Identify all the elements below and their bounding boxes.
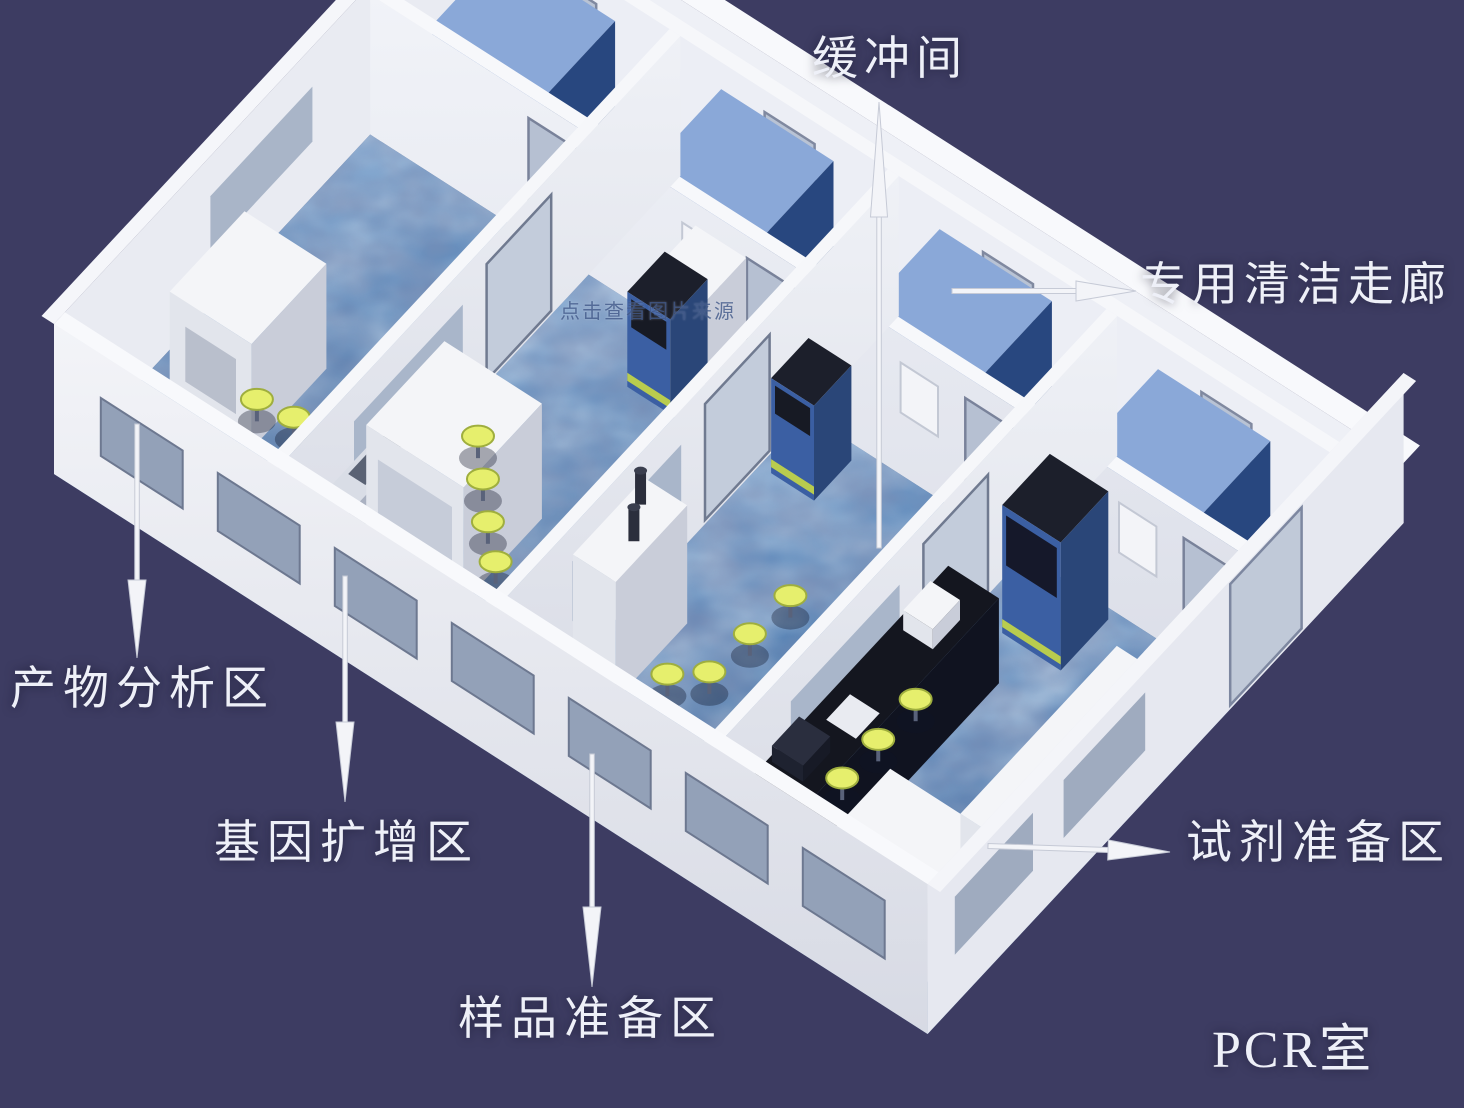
stool-room3-a bbox=[774, 585, 806, 606]
label-reagent-preparation: 试剂准备区 bbox=[1186, 818, 1451, 869]
stool-room4-c bbox=[826, 768, 858, 789]
pcr-lab-diagram: 缓冲间 专用清洁走廊 产物分析区 基因扩增区 样品准备区 试剂准备区 PCR室 … bbox=[0, 0, 1464, 1108]
label-sample-preparation: 样品准备区 bbox=[458, 994, 723, 1045]
arrow-sample-preparation-shaft bbox=[590, 754, 595, 907]
faucet-cap-room3-2 bbox=[627, 503, 640, 511]
stool-room3-b bbox=[734, 623, 766, 644]
faucet-cap-room3-1 bbox=[634, 467, 647, 475]
lab-3d-scene bbox=[0, 0, 1464, 1108]
arrow-buffer-room-shaft bbox=[877, 217, 882, 548]
label-product-analysis: 产物分析区 bbox=[10, 664, 275, 715]
arrow-clean-corridor-shaft bbox=[952, 289, 1076, 294]
label-clean-corridor: 专用清洁走廊 bbox=[1140, 260, 1452, 311]
arrow-gene-amplification-shaft bbox=[343, 576, 348, 722]
stool-room4-b bbox=[862, 729, 894, 750]
label-buffer-room: 缓冲间 bbox=[812, 34, 968, 85]
stool-room2-c bbox=[472, 511, 504, 532]
arrow-product-analysis-shaft bbox=[135, 424, 140, 580]
image-source-watermark[interactable]: 点击查看图片来源 bbox=[560, 295, 736, 324]
stool-room4-a bbox=[900, 689, 932, 710]
stool-room2-d bbox=[480, 551, 512, 572]
stool-room1-a bbox=[241, 389, 273, 410]
stool-room3-d bbox=[651, 664, 683, 685]
stool-room3-c bbox=[693, 661, 725, 682]
label-gene-amplification: 基因扩增区 bbox=[214, 818, 479, 869]
stool-room2-b bbox=[467, 468, 499, 489]
diagram-title-pcr-room: PCR室 bbox=[1212, 1022, 1374, 1079]
stool-room2-a bbox=[462, 426, 494, 447]
